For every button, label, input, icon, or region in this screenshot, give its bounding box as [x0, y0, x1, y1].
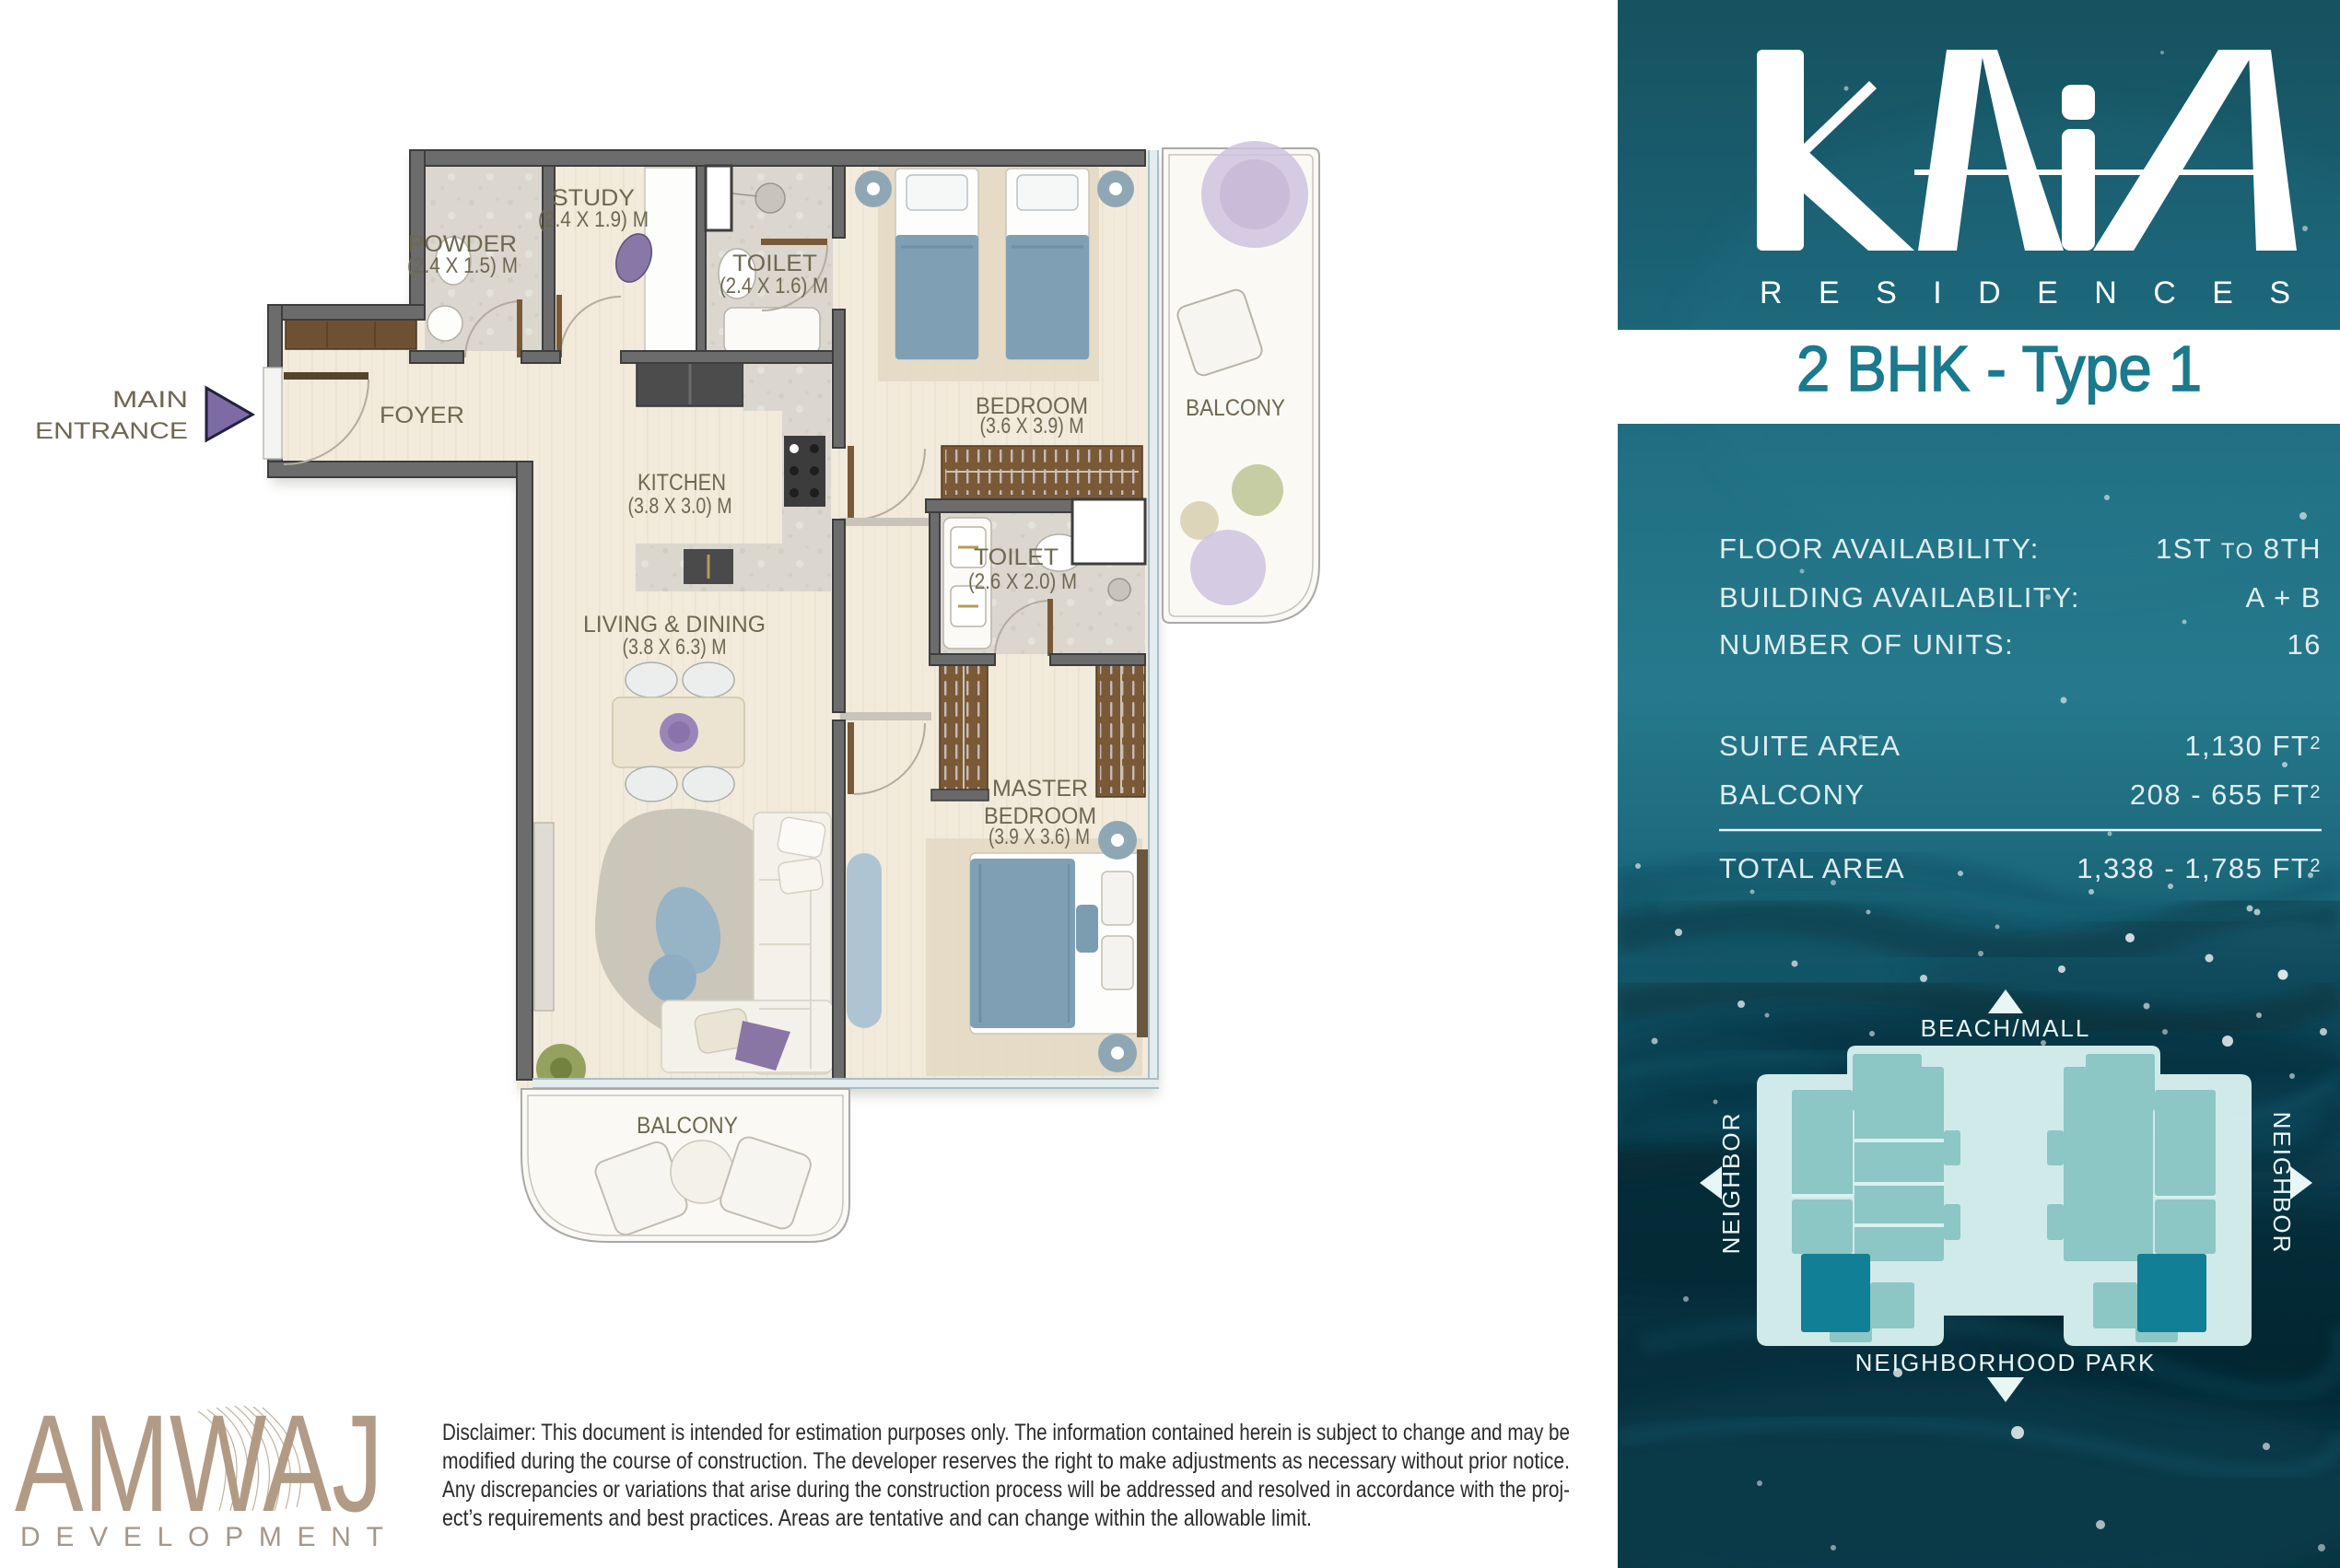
svg-text:(3.9 X 3.6) M: (3.9 X 3.6) M [989, 825, 1090, 849]
svg-text:NEIGHBOR: NEIGHBOR [1717, 1112, 1745, 1255]
svg-text:(3.8 X 6.3) M: (3.8 X 6.3) M [623, 635, 727, 660]
svg-text:TOILET: TOILET [732, 251, 817, 276]
svg-text:FLOOR AVAILABILITY:: FLOOR AVAILABILITY: [1719, 532, 2040, 565]
svg-text:MAIN: MAIN [112, 387, 188, 413]
svg-text:SUITE AREA: SUITE AREA [1719, 730, 1901, 762]
svg-text:BUILDING AVAILABILITY:: BUILDING AVAILABILITY: [1719, 581, 2080, 614]
svg-text:(2.6 X 2.0) M: (2.6 X 2.0) M [968, 569, 1077, 594]
svg-text:1,130 FT2: 1,130 FT2 [2184, 730, 2322, 762]
svg-text:2 BHK - Type 1: 2 BHK - Type 1 [1796, 333, 2202, 404]
svg-text:modified during the course of: modified during the course of constructi… [442, 1448, 1570, 1474]
svg-text:ect’s requirements and best pr: ect’s requirements and best practices. A… [442, 1505, 1312, 1531]
svg-text:TOTAL AREA: TOTAL AREA [1719, 852, 1905, 884]
svg-text:FOYER: FOYER [380, 403, 464, 428]
svg-text:NEIGHBORHOOD PARK: NEIGHBORHOOD PARK [1855, 1349, 2157, 1376]
svg-text:BEACH/MALL: BEACH/MALL [1921, 1014, 2091, 1042]
svg-text:A + B: A + B [2246, 581, 2322, 614]
svg-text:MASTER: MASTER [992, 776, 1088, 802]
svg-text:BALCONY: BALCONY [637, 1113, 738, 1139]
svg-text:BALCONY: BALCONY [1719, 778, 1866, 811]
svg-text:(3.6 X 3.9) M: (3.6 X 3.9) M [980, 414, 1084, 439]
svg-text:16: 16 [2287, 628, 2322, 661]
svg-text:NUMBER OF UNITS:: NUMBER OF UNITS: [1719, 628, 2014, 661]
svg-text:(2.4 X 1.5) M: (2.4 X 1.5) M [407, 253, 518, 278]
svg-text:(2.4 X 1.6) M: (2.4 X 1.6) M [720, 274, 828, 298]
svg-text:KITCHEN: KITCHEN [638, 470, 726, 496]
svg-text:208 - 655 FT2: 208 - 655 FT2 [2130, 778, 2322, 811]
svg-text:Disclaimer: This document is i: Disclaimer: This document is intended fo… [442, 1420, 1570, 1445]
svg-text:(3.8 X 3.0) M: (3.8 X 3.0) M [628, 494, 732, 519]
svg-text:LIVING & DINING: LIVING & DINING [583, 612, 766, 638]
svg-text:Any discrepancies or variation: Any discrepancies or variations that ari… [442, 1477, 1570, 1503]
svg-text:(2.4 X 1.9) M: (2.4 X 1.9) M [538, 207, 649, 232]
svg-text:TOILET: TOILET [974, 544, 1059, 570]
svg-text:NEIGHBOR: NEIGHBOR [2268, 1112, 2296, 1255]
svg-text:AMWAJ: AMWAJ [15, 1386, 383, 1540]
svg-text:BALCONY: BALCONY [1186, 395, 1285, 421]
svg-text:1,338 - 1,785 FT2: 1,338 - 1,785 FT2 [2077, 852, 2322, 884]
svg-text:ENTRANCE: ENTRANCE [35, 418, 188, 444]
